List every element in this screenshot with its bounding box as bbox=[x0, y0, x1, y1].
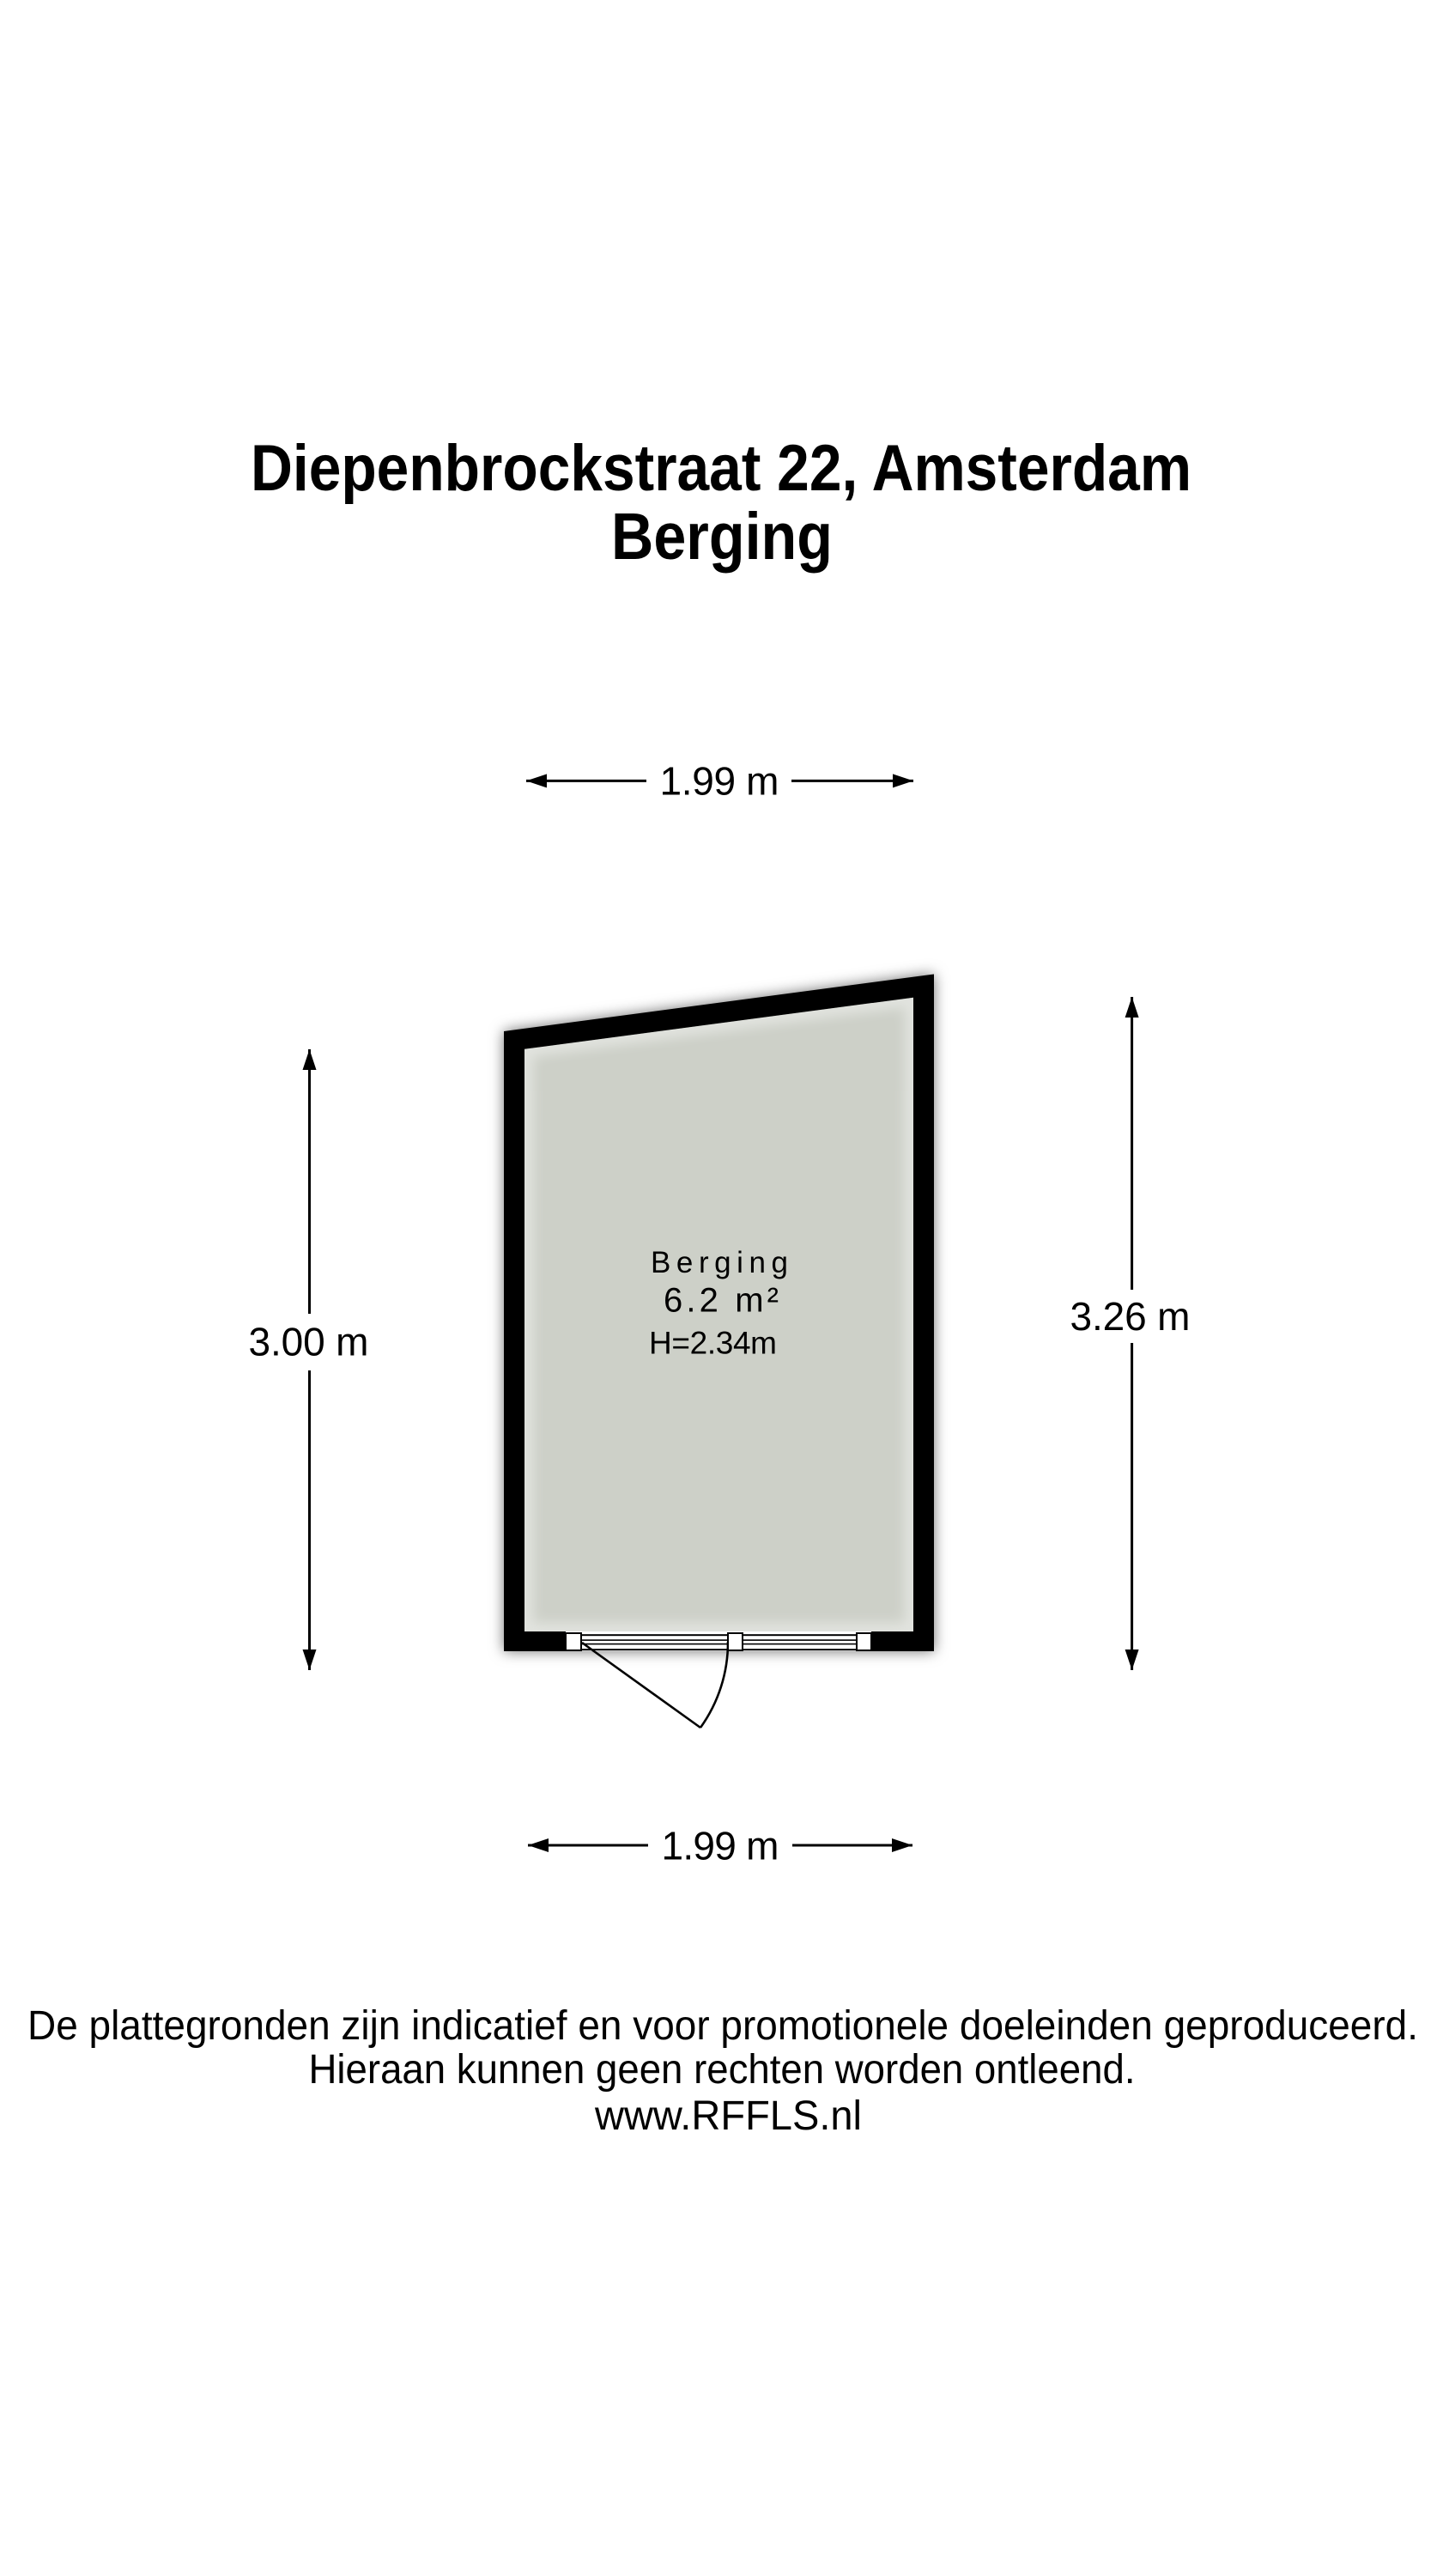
svg-text:1.99 m: 1.99 m bbox=[660, 758, 779, 803]
svg-text:6.2 m²: 6.2 m² bbox=[664, 1282, 779, 1320]
svg-text:H=2.34m: H=2.34m bbox=[649, 1325, 777, 1360]
svg-text:Berging: Berging bbox=[611, 500, 833, 574]
svg-text:3.00 m: 3.00 m bbox=[249, 1319, 369, 1364]
svg-text:www.RFFLS.nl: www.RFFLS.nl bbox=[594, 2093, 862, 2139]
svg-text:3.26 m: 3.26 m bbox=[1070, 1294, 1191, 1339]
svg-text:Hieraan kunnen geen rechten wo: Hieraan kunnen geen rechten worden ontle… bbox=[309, 2047, 1136, 2093]
svg-text:De plattegronden zijn indicati: De plattegronden zijn indicatief en voor… bbox=[27, 2003, 1418, 2049]
svg-text:1.99 m: 1.99 m bbox=[662, 1824, 779, 1868]
svg-text:Diepenbrockstraat 22, Amsterda: Diepenbrockstraat 22, Amsterdam bbox=[251, 432, 1191, 505]
